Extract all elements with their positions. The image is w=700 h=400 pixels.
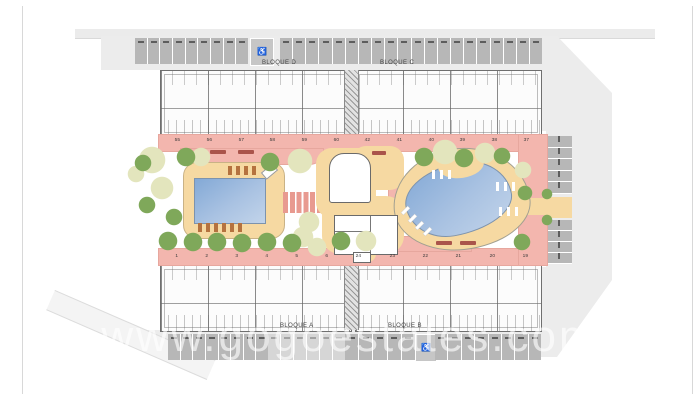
parking-stall: [530, 38, 542, 64]
unit-number: 60: [333, 137, 338, 142]
parking-stall: [546, 159, 572, 171]
parking-stall: [546, 171, 572, 183]
parking-stall: [546, 242, 572, 253]
unit-number: 56: [207, 137, 212, 142]
parking-stall: [546, 253, 572, 264]
parking-stall: [198, 38, 211, 64]
unit-number: 24: [356, 253, 361, 258]
parking-stall: [173, 38, 186, 64]
lounger-row: [432, 170, 452, 179]
unit-number: 5: [296, 253, 299, 258]
sunbed-icon: [210, 150, 226, 154]
lounger-row: [198, 223, 244, 232]
unit-number: 22: [423, 253, 428, 258]
west-pool: [194, 178, 266, 224]
stair-corridor-top: [344, 70, 359, 135]
sunbed-icon: [436, 241, 452, 245]
sunbed-icon: [460, 241, 476, 245]
unit-number: 58: [270, 137, 275, 142]
unit-number: 38: [492, 137, 497, 142]
parking-column-right-top: [546, 136, 572, 194]
unit-number: 6: [326, 253, 329, 258]
unit-number: 41: [397, 137, 402, 142]
unit-number: 1: [176, 253, 179, 258]
site-plan-canvas: ♿ ♿ BLOQUE D BLOQUE C BLOQUE A BLOQUE B: [0, 0, 700, 400]
label-bloque-d: BLOQUE D: [262, 60, 296, 66]
parking-stall: [224, 38, 237, 64]
parking-stall: [359, 38, 372, 64]
parking-stall: [211, 38, 224, 64]
unit-number: 4: [266, 253, 269, 258]
lounger-row: [228, 166, 258, 175]
parking-stall: [160, 38, 173, 64]
parking-column-right-bottom: [546, 220, 572, 264]
parking-stall: [333, 38, 346, 64]
unit-number: 3: [236, 253, 239, 258]
clubhouse-room-plan: [334, 215, 398, 255]
parking-row-top-west: [135, 38, 248, 64]
sheet-fold-line-left: [22, 6, 23, 394]
parking-stall: [236, 38, 248, 64]
parking-stall: [546, 136, 572, 148]
label-bloque-c: BLOQUE C: [380, 60, 414, 66]
unit-number: 39: [460, 137, 465, 142]
unit-number: 21: [456, 253, 461, 258]
unit-number: 42: [365, 137, 370, 142]
parking-stall: [135, 38, 148, 64]
east-entrance-walk: [546, 197, 572, 218]
parking-stall: [451, 38, 464, 64]
unit-numbers-bottom: 123456242322212019: [162, 251, 542, 260]
parking-stall: [319, 38, 332, 64]
unit-number: 23: [389, 253, 394, 258]
sunbed-icon: [238, 150, 254, 154]
parking-stall: [425, 38, 438, 64]
unit-number: 55: [175, 137, 180, 142]
parking-stall: [546, 220, 572, 231]
unit-number: 20: [489, 253, 494, 258]
wheelchair-icon: ♿: [257, 48, 267, 56]
parking-stall: [346, 38, 359, 64]
parking-stall: [186, 38, 199, 64]
parking-stall: [546, 148, 572, 160]
parking-stall: [438, 38, 451, 64]
parking-stall: [517, 38, 530, 64]
unit-number: 2: [206, 253, 209, 258]
unit-numbers-top: 555657585960424140393837: [162, 135, 542, 144]
unit-number: 19: [523, 253, 528, 258]
sunbed-icon: [372, 151, 386, 155]
parking-stall: [546, 231, 572, 242]
unit-number: 59: [302, 137, 307, 142]
parking-stall: [546, 182, 572, 194]
parking-stall: [464, 38, 477, 64]
west-open-area: [96, 70, 160, 330]
parking-stall: [477, 38, 490, 64]
parking-stall: [504, 38, 517, 64]
building-bloque-c: [355, 70, 542, 137]
lounger-row: [496, 182, 516, 191]
parking-stall: [491, 38, 504, 64]
building-bloque-d: [160, 70, 352, 137]
clubhouse-arched-room: [329, 153, 371, 203]
watermark: www.gogoestates.com: [0, 312, 700, 362]
parking-stall: [306, 38, 319, 64]
unit-number: 37: [523, 137, 528, 142]
sheet-fold-line-right: [692, 6, 693, 394]
unit-number: 40: [428, 137, 433, 142]
lounger-row: [499, 207, 519, 216]
parking-stall: [148, 38, 161, 64]
unit-number: 57: [238, 137, 243, 142]
